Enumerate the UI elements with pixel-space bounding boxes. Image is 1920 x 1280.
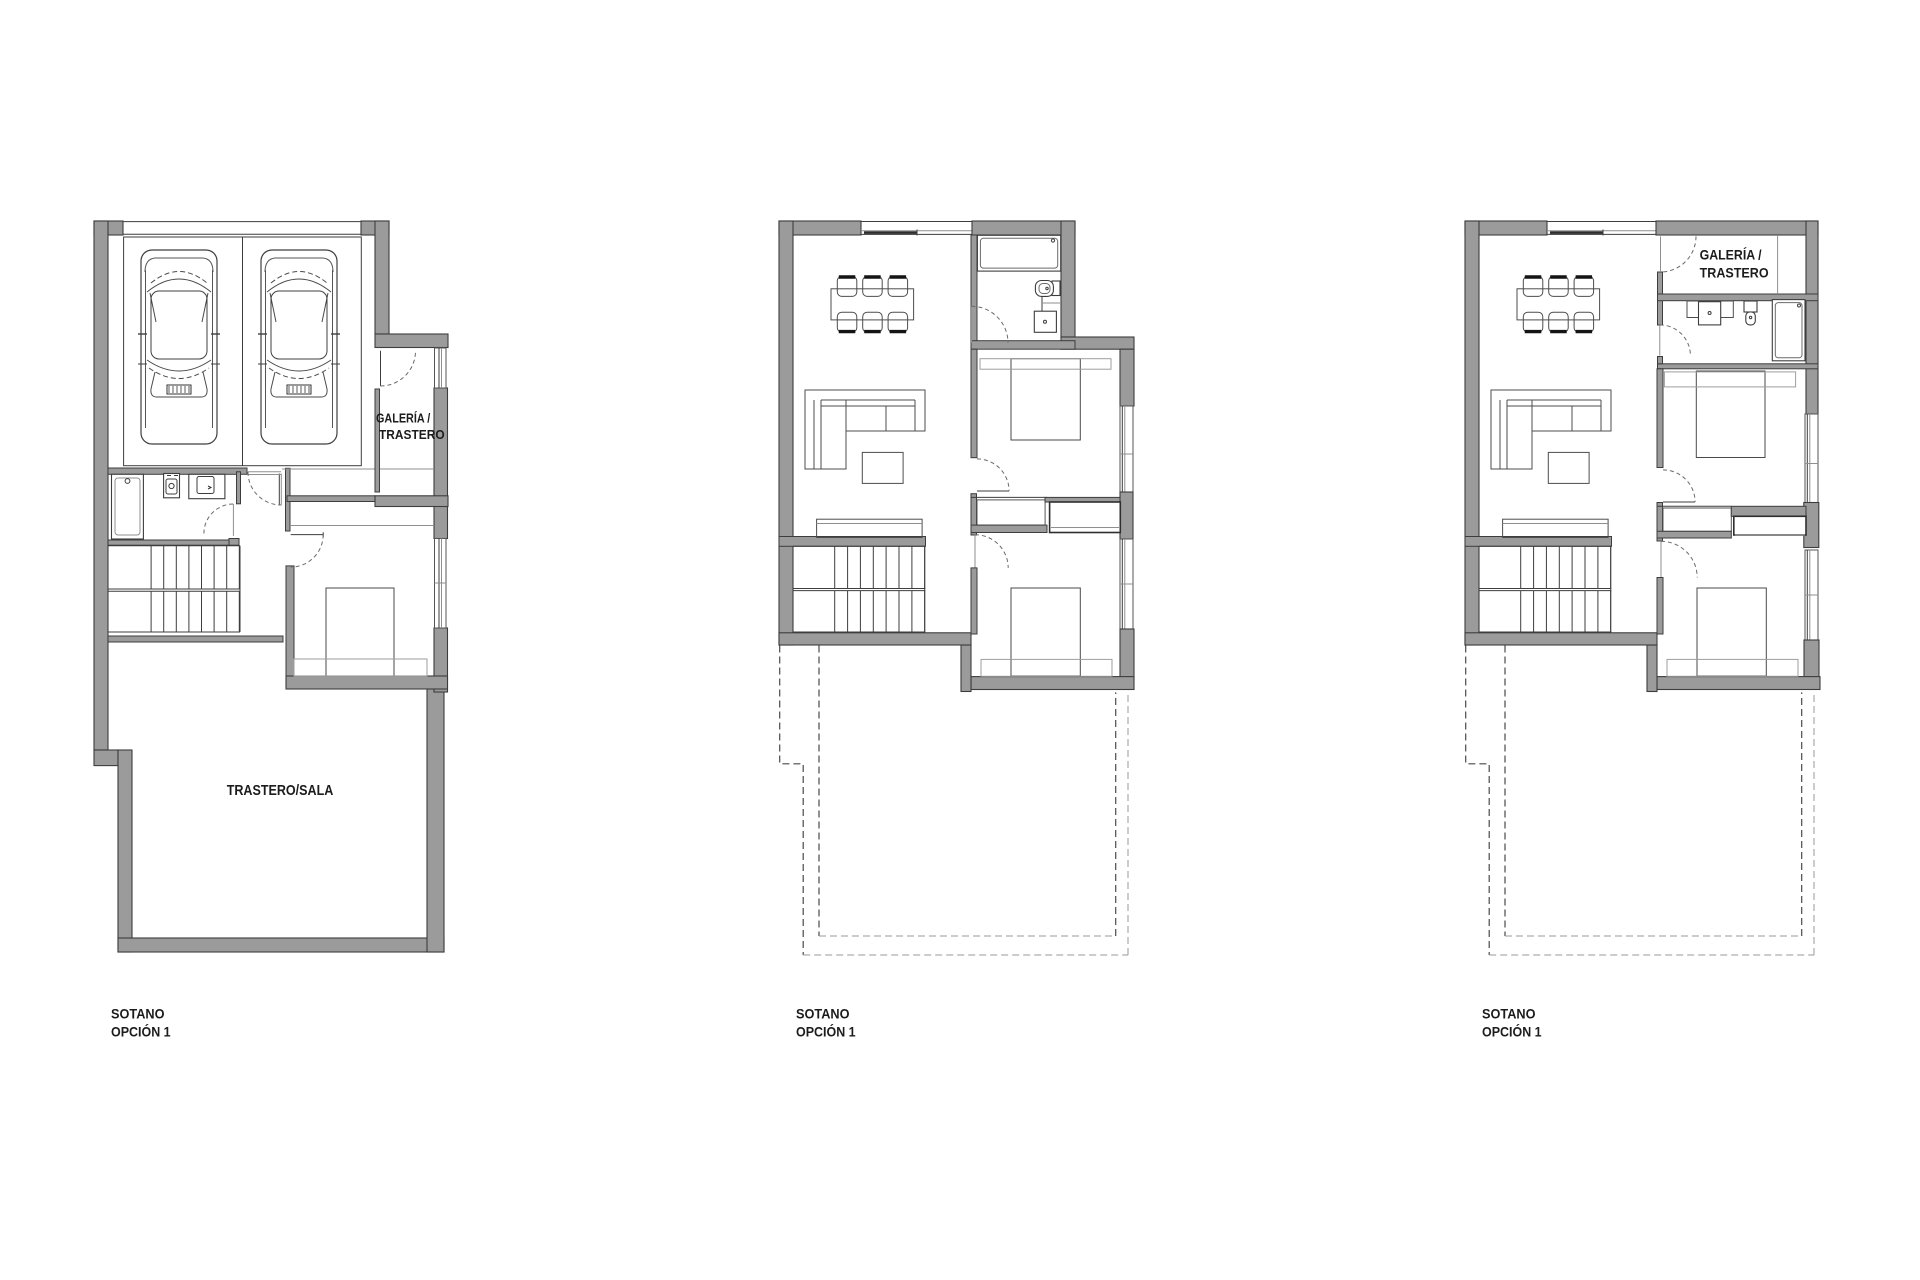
svg-text:GALERÍA /: GALERÍA / [376, 411, 431, 426]
svg-text:TRASTERO: TRASTERO [1700, 265, 1769, 281]
svg-text:OPCIÓN 1: OPCIÓN 1 [1482, 1025, 1542, 1040]
svg-text:OPCIÓN 1: OPCIÓN 1 [796, 1025, 856, 1040]
svg-text:GALERÍA /: GALERÍA / [1700, 247, 1762, 263]
svg-text:SOTANO: SOTANO [111, 1007, 165, 1022]
svg-text:SOTANO: SOTANO [1482, 1007, 1536, 1022]
svg-text:SOTANO: SOTANO [796, 1007, 850, 1022]
svg-text:OPCIÓN 1: OPCIÓN 1 [111, 1025, 171, 1040]
svg-text:TRASTERO: TRASTERO [379, 428, 445, 442]
svg-text:TRASTERO/SALA: TRASTERO/SALA [227, 782, 334, 799]
